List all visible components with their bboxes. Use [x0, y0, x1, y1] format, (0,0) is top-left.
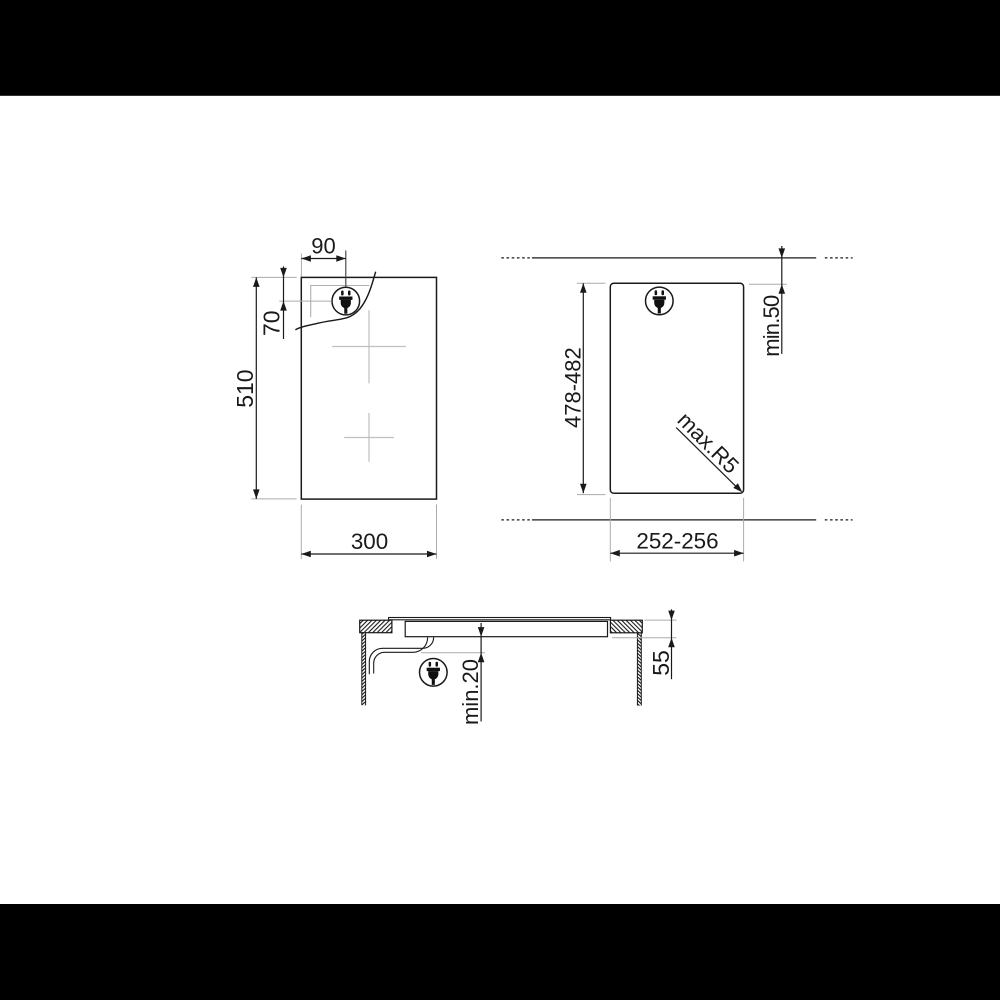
svg-text:55: 55: [648, 650, 674, 676]
svg-text:min.20: min.20: [458, 659, 483, 725]
svg-text:min.50: min.50: [759, 295, 784, 357]
svg-text:90: 90: [311, 234, 335, 259]
svg-text:70: 70: [259, 310, 285, 336]
svg-text:478-482: 478-482: [560, 347, 585, 428]
svg-text:252-256: 252-256: [636, 529, 718, 554]
svg-text:510: 510: [232, 369, 258, 407]
svg-text:300: 300: [351, 529, 388, 554]
